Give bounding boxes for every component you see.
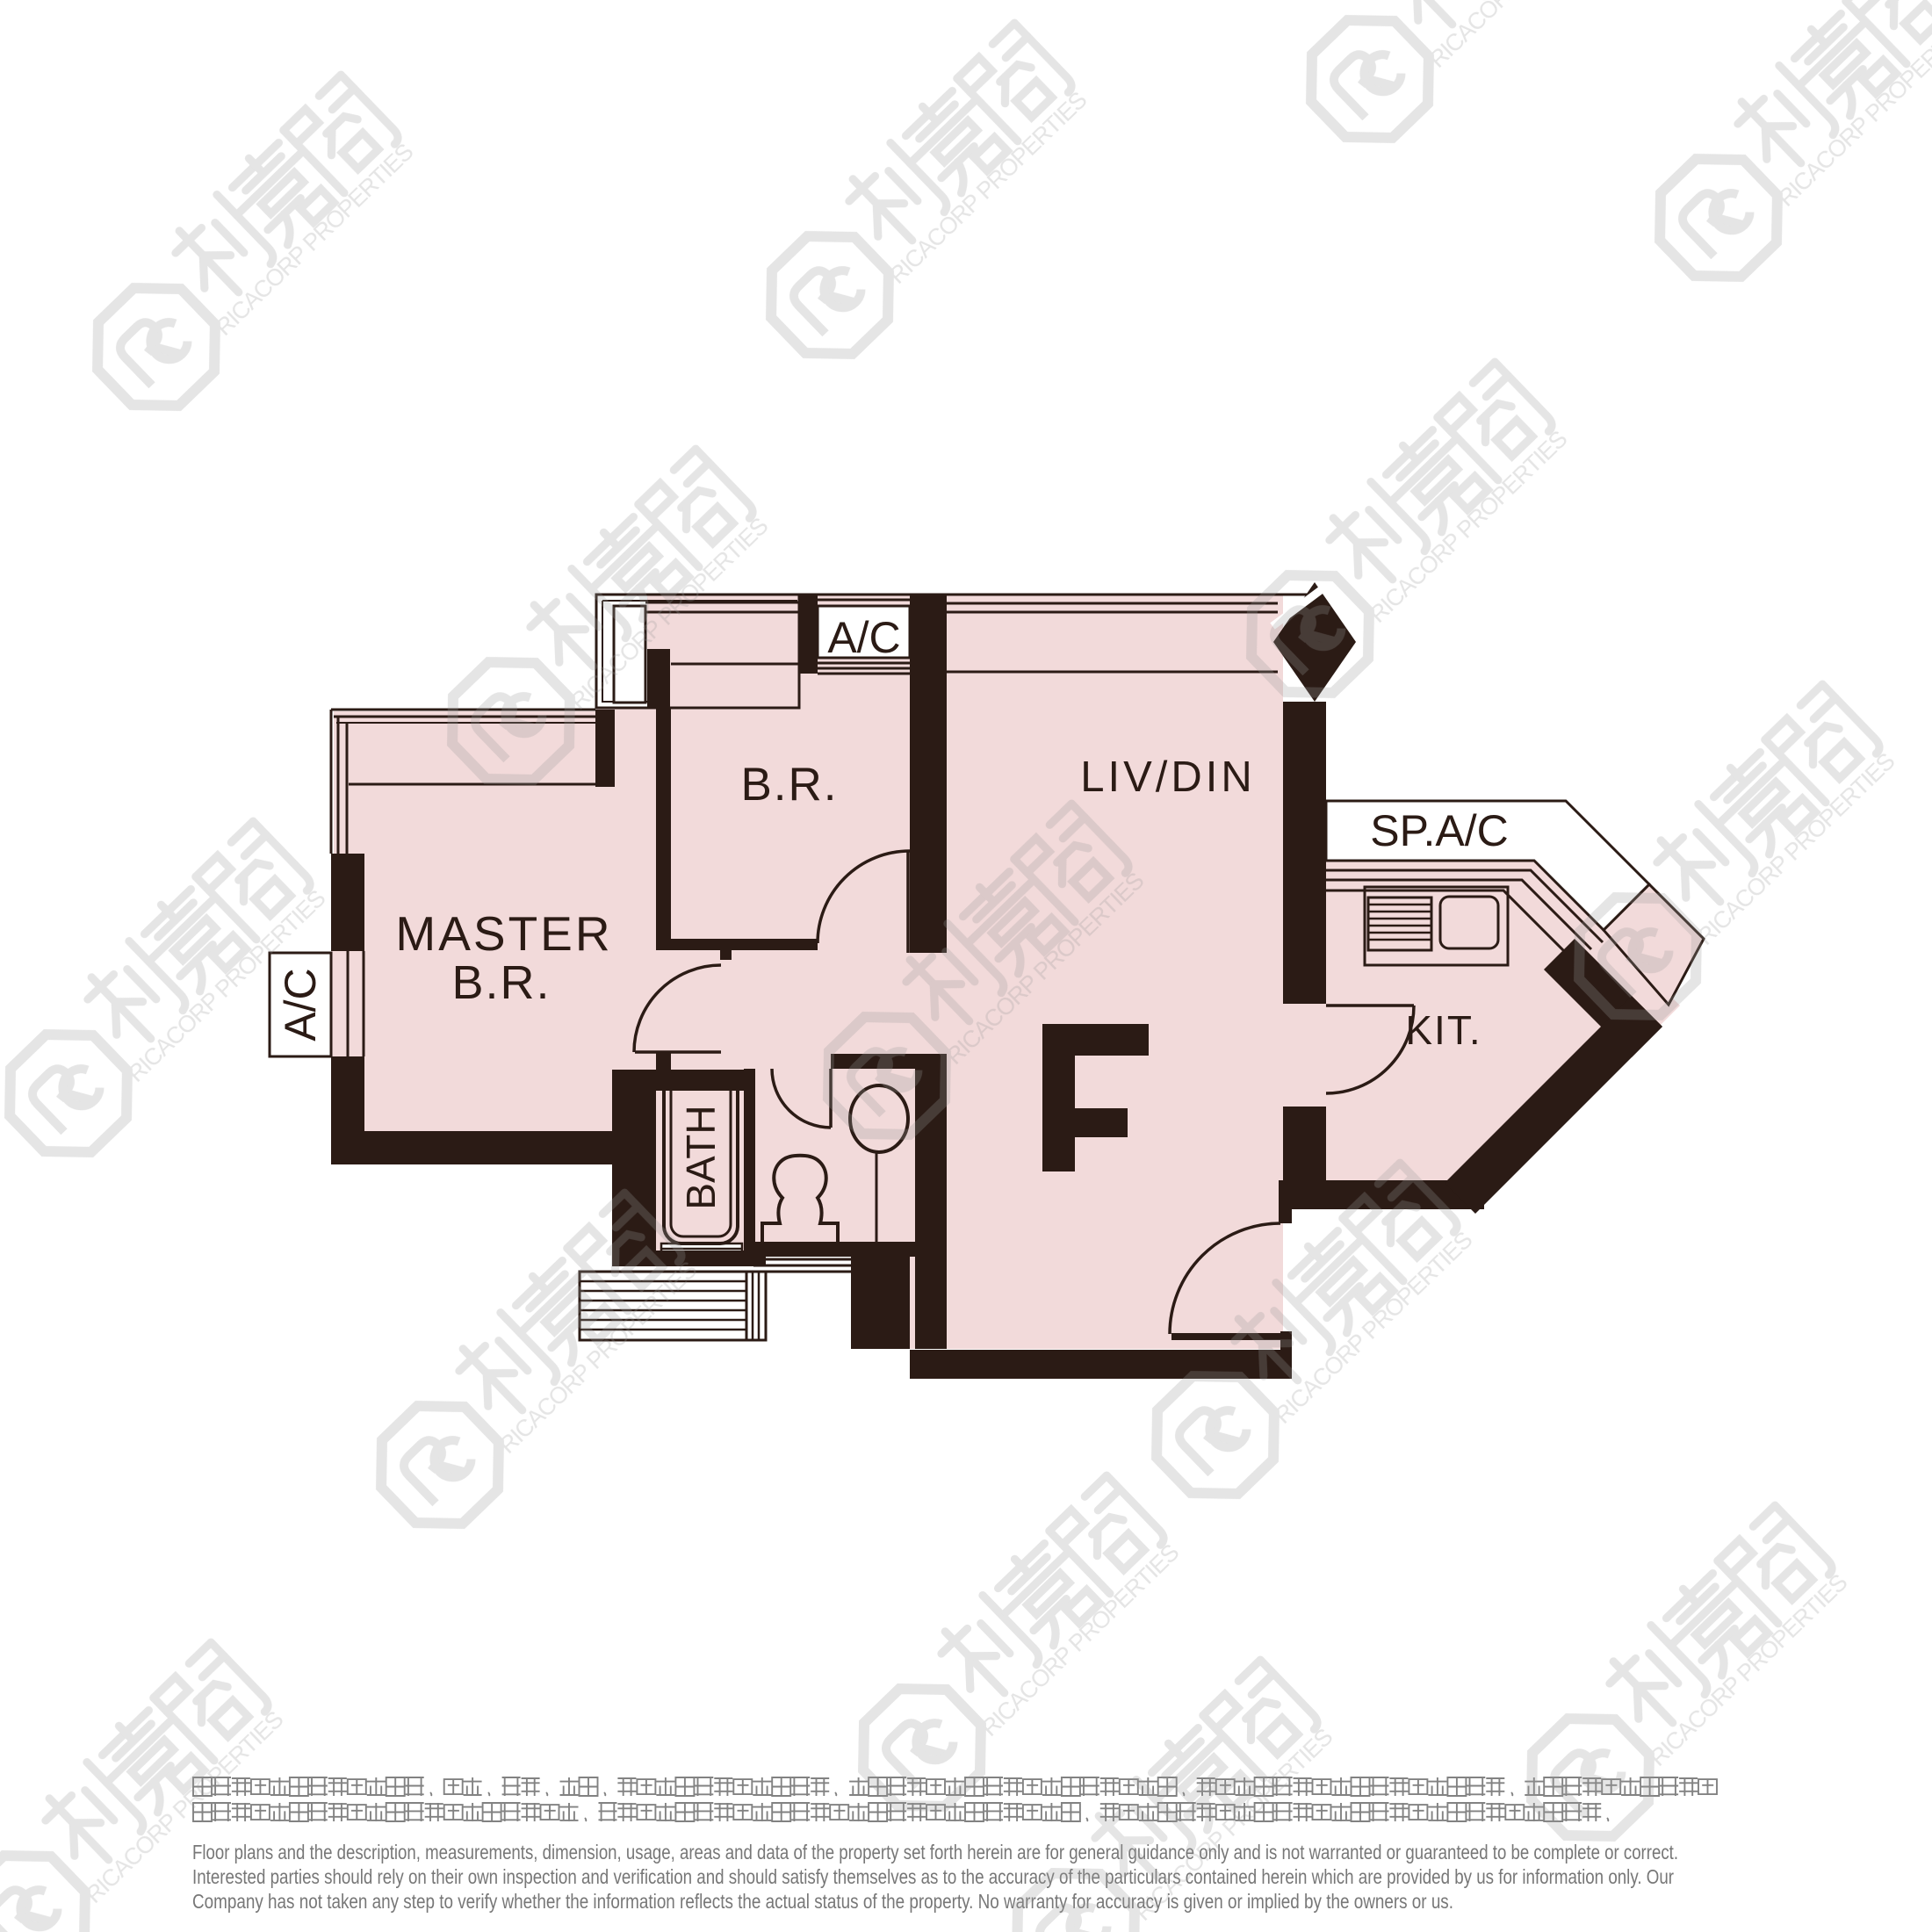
svg-text:B.R.: B.R.: [740, 759, 838, 811]
svg-text:Floor plans and the descriptio: Floor plans and the description, measure…: [192, 1841, 1678, 1864]
svg-text:MASTER: MASTER: [395, 906, 612, 961]
svg-text:LIV/DIN: LIV/DIN: [1080, 753, 1256, 801]
svg-text:KIT.: KIT.: [1405, 1007, 1481, 1053]
svg-text:SP.A/C: SP.A/C: [1370, 806, 1509, 855]
svg-text:A/C: A/C: [276, 968, 325, 1041]
svg-text:B.R.: B.R.: [451, 956, 551, 1009]
svg-text:Company has not taken any step: Company has not taken any step to verify…: [192, 1890, 1453, 1913]
svg-text:BATH: BATH: [678, 1105, 724, 1209]
svg-text:Interested parties should rely: Interested parties should rely on their …: [192, 1865, 1674, 1888]
svg-text:A/C: A/C: [827, 613, 900, 662]
